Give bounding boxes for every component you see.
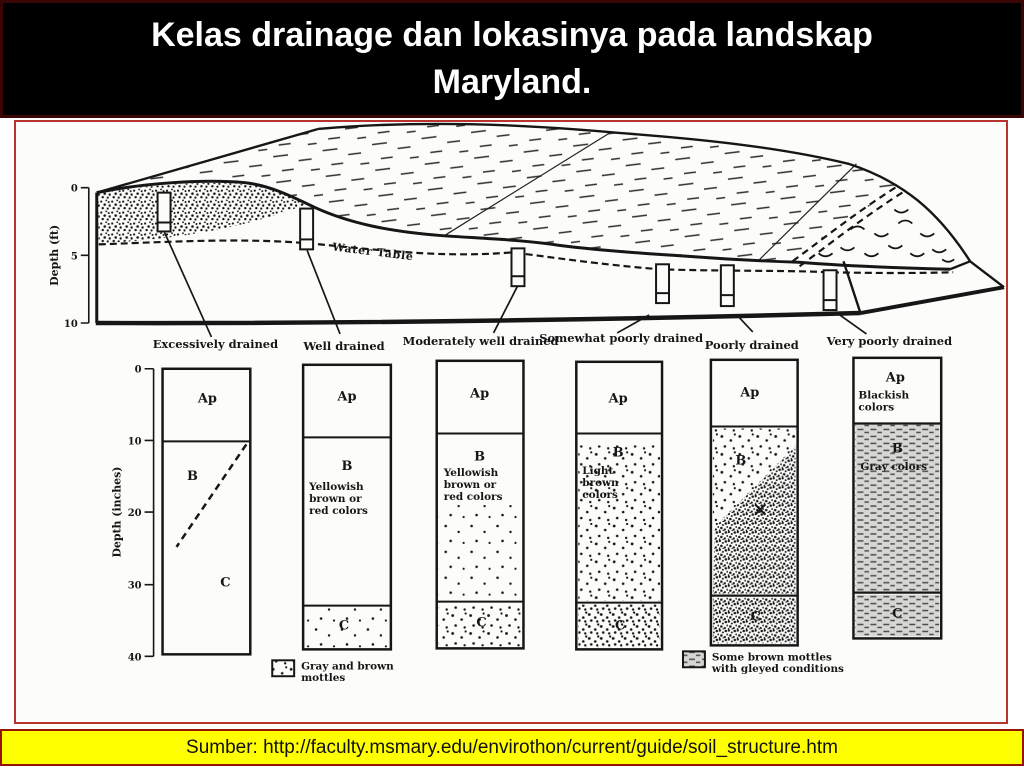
depth-in-tick-30: 30 xyxy=(128,581,142,592)
b-horizon-desc-line: brown or xyxy=(309,493,362,505)
depth-ft-axis: 0 5 10 Depth (ft) xyxy=(48,184,89,330)
legend-text-line: with gleyed conditions xyxy=(711,663,844,675)
depth-ft-tick-0: 0 xyxy=(71,184,78,195)
legend-text-line: Some brown mottles xyxy=(712,651,832,663)
well-marker-2 xyxy=(300,209,313,250)
horizon-label-b: B xyxy=(613,445,624,460)
soil-column-excessively-drained: Ap B C xyxy=(163,369,251,655)
bottom-front-edge xyxy=(96,313,861,323)
class-label-somewhat-poorly-drained: Somewhat poorly drained xyxy=(539,331,703,345)
title-bar: Kelas drainage dan lokasinya pada landsk… xyxy=(0,0,1024,118)
depth-ft-axis-label: Depth (ft) xyxy=(48,225,61,286)
ap-horizon-desc-line: colors xyxy=(858,402,894,414)
depth-ft-tick-5: 5 xyxy=(71,251,78,262)
depth-inches-axis-label: Depth (inches) xyxy=(111,467,124,558)
soil-column-somewhat-poorly-drained: Ap B Light brown colors C xyxy=(576,362,662,650)
slide-page: Kelas drainage dan lokasinya pada landsk… xyxy=(0,0,1024,768)
drainage-class-labels: Excessively drained Well drained Moderat… xyxy=(153,331,952,353)
b-horizon-desc-line: colors xyxy=(582,489,618,501)
horizon-label-c: C xyxy=(615,618,625,633)
soil-column-poorly-drained: Ap B C xyxy=(711,360,798,646)
depth-ft-tick-10: 10 xyxy=(64,319,78,330)
depth-in-tick-10: 10 xyxy=(128,436,142,447)
soil-column-very-poorly-drained: Ap Blackish colors B Gray colors C xyxy=(853,358,941,639)
water-table-label: Water Table xyxy=(331,240,415,263)
b-horizon-desc-line: brown xyxy=(582,477,619,489)
class-label-poorly-drained: Poorly drained xyxy=(705,338,799,352)
horizon-label-c: C xyxy=(339,618,349,633)
horizon-label-c: C xyxy=(751,610,761,625)
figure-panel: Water Table xyxy=(14,120,1008,724)
horizon-label-c: C xyxy=(220,576,230,591)
b-horizon-desc-line: red colors xyxy=(444,491,503,503)
legend-gray-brown-mottles: Gray and brown mottles xyxy=(272,660,394,684)
horizon-label-ap: Ap xyxy=(739,386,759,401)
horizon-label-b: B xyxy=(342,459,353,474)
horizon-label-b: B xyxy=(892,441,903,456)
class-label-moderately-well-drained: Moderately well drained xyxy=(403,334,559,348)
mottles-swatch-icon xyxy=(272,660,294,676)
b-horizon-desc-line: Light xyxy=(582,465,613,477)
b-horizon-desc-line: red colors xyxy=(309,505,368,517)
well-marker-3 xyxy=(511,248,524,286)
source-text: Sumber: http://faculty.msmary.edu/enviro… xyxy=(186,737,838,759)
well-marker-1 xyxy=(158,193,171,232)
depth-inches-axis: 0 10 20 30 40 Depth (inches) xyxy=(111,365,154,664)
class-label-well-drained: Well drained xyxy=(302,339,384,353)
horizon-label-b: B xyxy=(474,449,485,464)
b-horizon-desc-line: Yellowish xyxy=(308,481,364,493)
horizon-label-c: C xyxy=(476,615,486,630)
b-horizon-desc-line: Gray colors xyxy=(860,461,927,473)
soil-drainage-figure: Water Table xyxy=(16,122,1006,722)
horizon-label-ap: Ap xyxy=(336,390,356,405)
legend-gleyed-conditions: Some brown mottles with gleyed condition… xyxy=(683,651,844,675)
depth-in-tick-40: 40 xyxy=(128,652,142,663)
horizon-label-c: C xyxy=(892,607,902,622)
stipple-wedge xyxy=(98,183,305,243)
right-back-edge xyxy=(950,261,1004,287)
slide-title-line-1: Kelas drainage dan lokasinya pada landsk… xyxy=(151,12,873,59)
slide-title-line-2: Maryland. xyxy=(433,59,592,106)
horizon-label-ap: Ap xyxy=(469,387,489,402)
well-marker-4 xyxy=(656,264,669,303)
horizon-label-ap: Ap xyxy=(197,392,217,407)
right-corner-edge xyxy=(843,261,860,313)
well-marker-6 xyxy=(824,270,837,310)
legend-text-line: Gray and brown xyxy=(301,660,394,672)
b-horizon-desc-line: brown or xyxy=(444,479,497,491)
well-marker-5 xyxy=(721,265,734,306)
depth-in-tick-0: 0 xyxy=(135,365,142,376)
horizon-label-b: B xyxy=(187,469,198,484)
horizon-label-ap: Ap xyxy=(885,371,905,386)
soil-column-moderately-well-drained: Ap B Yellowish brown or red colors C xyxy=(437,361,524,649)
legend-text-line: mottles xyxy=(301,672,345,684)
block-diagram: Water Table xyxy=(48,124,1004,337)
gleyed-swatch-icon xyxy=(683,651,705,667)
horizon-label-ap: Ap xyxy=(608,392,628,407)
class-label-excessively-drained: Excessively drained xyxy=(153,337,278,351)
depth-in-tick-20: 20 xyxy=(128,508,142,519)
ap-horizon-desc-line: Blackish xyxy=(858,390,909,402)
class-label-very-poorly-drained: Very poorly drained xyxy=(826,334,953,348)
soil-column-well-drained: Ap B Yellowish brown or red colors C xyxy=(303,365,391,650)
b-horizon-desc-line: Yellowish xyxy=(443,467,499,479)
source-bar: Sumber: http://faculty.msmary.edu/enviro… xyxy=(0,729,1024,766)
horizon-label-b: B xyxy=(735,453,746,468)
bottom-right-edge xyxy=(860,287,1004,313)
